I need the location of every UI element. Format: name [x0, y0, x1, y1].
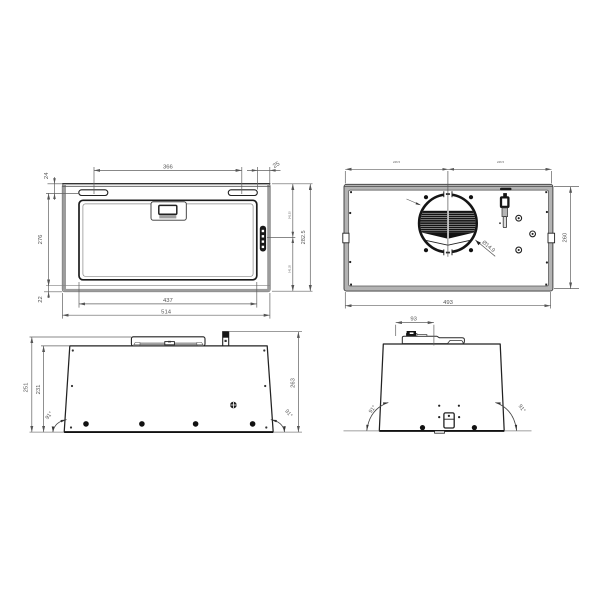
svg-text:263: 263: [291, 377, 297, 388]
svg-text:24: 24: [44, 172, 50, 179]
svg-text:246.5: 246.5: [393, 160, 400, 164]
svg-text:276: 276: [38, 234, 44, 245]
svg-text:366: 366: [163, 164, 174, 170]
svg-text:437: 437: [163, 298, 173, 304]
svg-text:22: 22: [38, 296, 44, 303]
svg-text:493: 493: [443, 300, 454, 306]
svg-text:93: 93: [410, 316, 417, 322]
svg-text:141.25: 141.25: [287, 264, 291, 272]
svg-text:141.25: 141.25: [287, 211, 291, 219]
svg-text:282.5: 282.5: [301, 230, 307, 244]
svg-text:246.5: 246.5: [497, 160, 504, 164]
svg-text:260: 260: [562, 232, 568, 243]
svg-text:514: 514: [161, 309, 172, 315]
svg-text:251: 251: [24, 383, 30, 393]
svg-text:231: 231: [36, 385, 42, 395]
